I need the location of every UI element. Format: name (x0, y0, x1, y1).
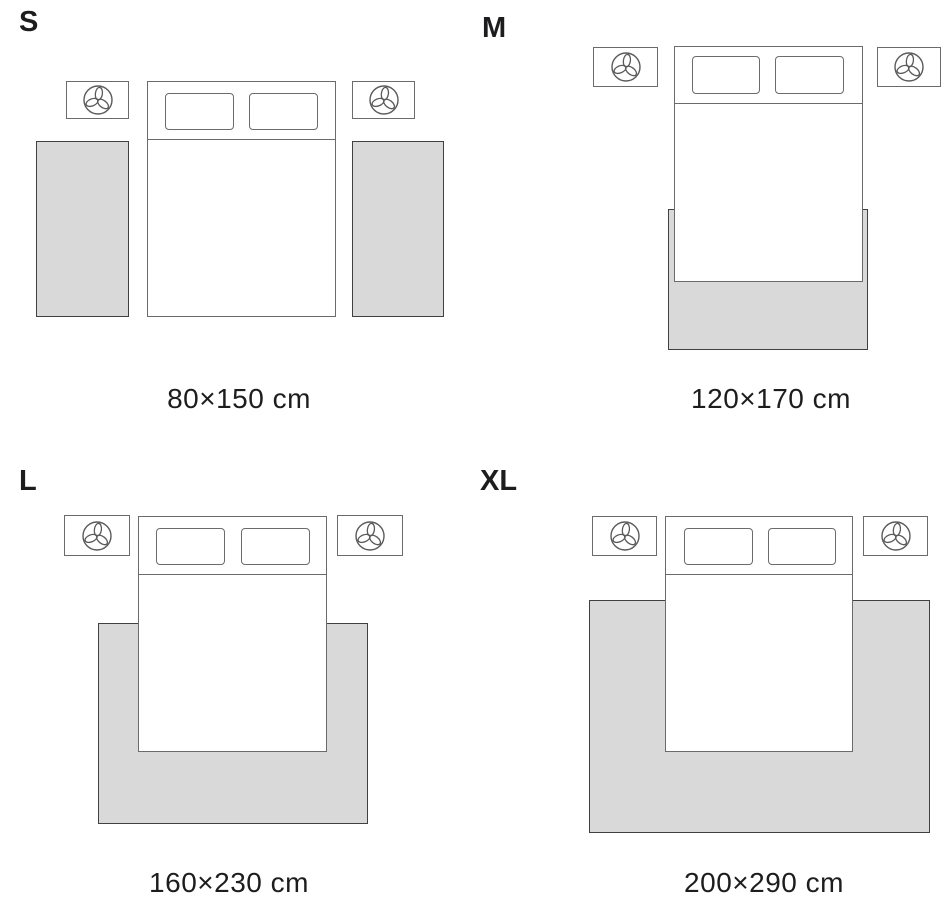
panel-size-xl: XL 200×290 cm (475, 450, 950, 900)
pillow-right (775, 56, 844, 94)
size-label-m: M (482, 14, 506, 43)
bed (674, 46, 863, 282)
plant-icon (368, 84, 400, 116)
pillow-right (768, 528, 836, 565)
pillow-left (684, 528, 753, 565)
size-caption: 120×170 cm (621, 385, 921, 413)
pillow-right (241, 528, 310, 565)
nightstand-left (66, 81, 129, 119)
plant-icon (610, 51, 642, 83)
size-caption: 80×150 cm (89, 385, 389, 413)
plant-icon (81, 520, 113, 552)
nightstand-right (877, 47, 941, 87)
nightstand-right (352, 81, 415, 119)
plant-icon (880, 520, 912, 552)
plant-icon (893, 51, 925, 83)
plant-icon (82, 84, 114, 116)
plant-icon (354, 520, 386, 552)
pillow-left (692, 56, 760, 94)
size-label-xl: XL (480, 467, 517, 496)
nightstand-left (64, 515, 130, 556)
rug-runner-right (352, 141, 444, 317)
bed (138, 516, 327, 752)
bed (665, 516, 853, 752)
panel-size-m: M 120×170 cm (475, 0, 950, 450)
panel-size-l: L 160×230 cm (0, 450, 475, 900)
nightstand-right (863, 516, 928, 556)
size-label-s: S (19, 8, 38, 37)
pillow-left (165, 93, 234, 130)
size-caption: 200×290 cm (614, 869, 914, 897)
nightstand-right (337, 515, 403, 556)
rug-size-guide-diagram: S 80×150 cm M 120×170 c (0, 0, 950, 900)
pillow-right (249, 93, 318, 130)
size-caption: 160×230 cm (79, 869, 379, 897)
pillow-left (156, 528, 225, 565)
nightstand-left (592, 516, 657, 556)
plant-icon (609, 520, 641, 552)
nightstand-left (593, 47, 658, 87)
rug-runner-left (36, 141, 129, 317)
panel-size-s: S 80×150 cm (0, 0, 475, 450)
size-label-l: L (19, 467, 37, 496)
bed (147, 81, 336, 317)
